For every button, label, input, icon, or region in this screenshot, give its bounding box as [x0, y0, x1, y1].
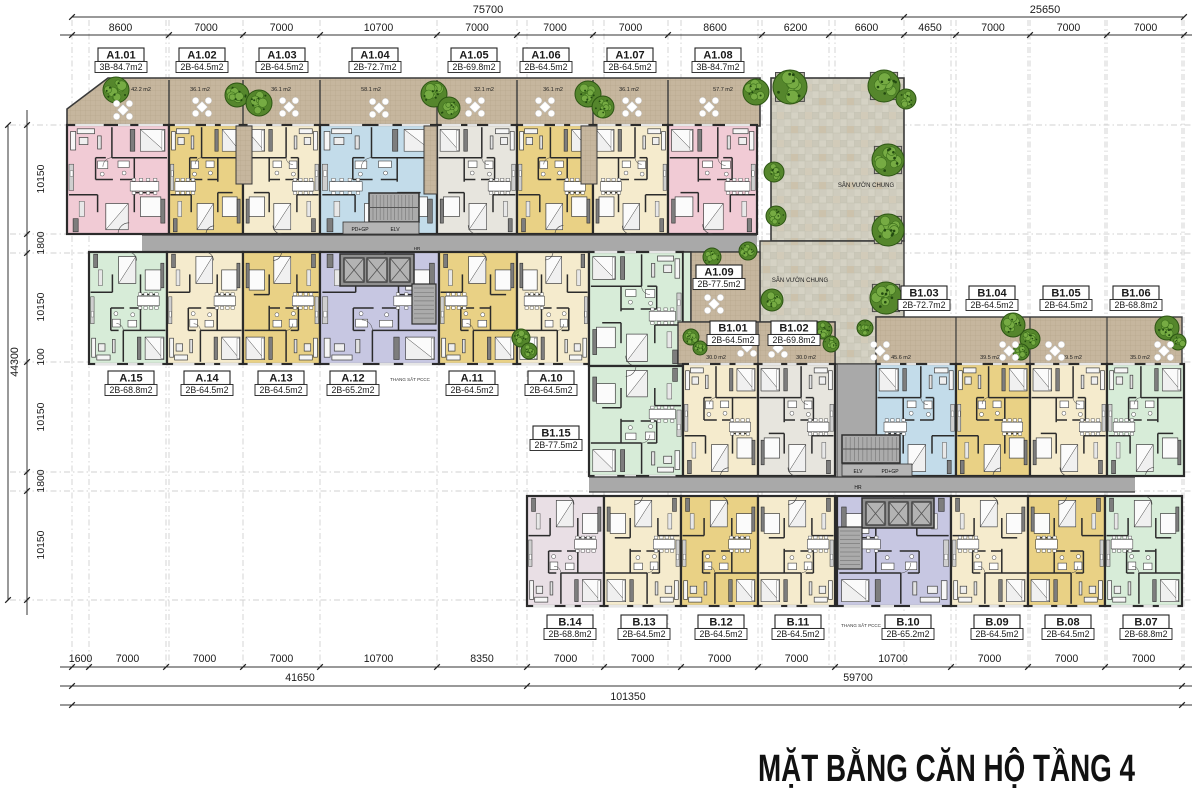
svg-text:A1.09: A1.09 [704, 267, 733, 279]
svg-text:A1.01: A1.01 [106, 50, 135, 62]
svg-text:A1.05: A1.05 [459, 50, 488, 62]
svg-text:SÂN VƯỜN CHUNG: SÂN VƯỜN CHUNG [772, 277, 829, 284]
svg-text:B.12: B.12 [709, 617, 732, 629]
svg-text:7000: 7000 [785, 653, 809, 665]
svg-text:2B-68.8m2: 2B-68.8m2 [1114, 300, 1157, 310]
svg-text:B1.06: B1.06 [1121, 288, 1150, 300]
svg-text:A1.02: A1.02 [187, 50, 216, 62]
svg-text:7000: 7000 [193, 653, 217, 665]
svg-text:75700: 75700 [473, 4, 504, 16]
svg-text:A.11: A.11 [461, 373, 484, 385]
svg-text:A.12: A.12 [341, 373, 364, 385]
svg-text:1600: 1600 [69, 653, 93, 665]
svg-text:3B-84.7m2: 3B-84.7m2 [696, 62, 739, 72]
svg-text:4650: 4650 [918, 22, 942, 34]
svg-text:2B-64.5m2: 2B-64.5m2 [776, 629, 819, 639]
svg-text:B.13: B.13 [632, 617, 655, 629]
svg-text:2B-65.2m2: 2B-65.2m2 [886, 629, 929, 639]
svg-text:2B-72.7m2: 2B-72.7m2 [902, 300, 945, 310]
svg-text:8600: 8600 [703, 22, 727, 34]
svg-text:32.1 m2: 32.1 m2 [474, 87, 494, 93]
svg-text:2B-68.8m2: 2B-68.8m2 [548, 629, 591, 639]
svg-text:7000: 7000 [631, 653, 655, 665]
svg-text:10150: 10150 [36, 164, 47, 193]
svg-text:30.0 m2: 30.0 m2 [796, 355, 816, 361]
svg-text:7000: 7000 [1055, 653, 1079, 665]
svg-text:2B-64.5m2: 2B-64.5m2 [970, 300, 1013, 310]
svg-text:ELV: ELV [853, 469, 863, 475]
svg-text:36.1 m2: 36.1 m2 [190, 87, 210, 93]
svg-text:7000: 7000 [1132, 653, 1156, 665]
svg-text:2B-69.8m2: 2B-69.8m2 [772, 335, 815, 345]
svg-text:7000: 7000 [1057, 22, 1081, 34]
svg-text:2B-64.5m2: 2B-64.5m2 [180, 62, 223, 72]
svg-text:2B-64.5m2: 2B-64.5m2 [1046, 629, 1089, 639]
svg-text:A.14: A.14 [195, 373, 219, 385]
svg-text:MẶT BẰNG CĂN HỘ TẦNG 4: MẶT BẰNG CĂN HỘ TẦNG 4 [758, 745, 1135, 790]
svg-text:A.15: A.15 [119, 373, 142, 385]
svg-text:7000: 7000 [465, 22, 489, 34]
svg-text:2B-77.5m2: 2B-77.5m2 [534, 440, 577, 450]
svg-text:10150: 10150 [36, 292, 47, 321]
svg-text:2B-64.5m2: 2B-64.5m2 [1044, 300, 1087, 310]
svg-text:100: 100 [36, 348, 47, 366]
svg-text:44300: 44300 [9, 347, 21, 377]
svg-text:A1.03: A1.03 [267, 50, 296, 62]
svg-text:7000: 7000 [708, 653, 732, 665]
svg-text:6600: 6600 [855, 22, 879, 34]
svg-text:1800: 1800 [36, 231, 47, 254]
svg-text:B.10: B.10 [896, 617, 919, 629]
svg-text:B1.01: B1.01 [718, 323, 747, 335]
svg-text:2B-69.8m2: 2B-69.8m2 [452, 62, 495, 72]
svg-text:10700: 10700 [364, 653, 394, 665]
svg-text:10700: 10700 [878, 653, 908, 665]
svg-text:ELV: ELV [390, 227, 400, 233]
svg-text:25650: 25650 [1030, 4, 1061, 16]
svg-text:PD+GP: PD+GP [351, 227, 369, 233]
svg-text:7000: 7000 [554, 653, 578, 665]
svg-text:2B-72.7m2: 2B-72.7m2 [353, 62, 396, 72]
svg-text:7000: 7000 [619, 22, 643, 34]
svg-text:2B-64.5m2: 2B-64.5m2 [622, 629, 665, 639]
svg-text:A1.08: A1.08 [703, 50, 732, 62]
svg-text:2B-77.5m2: 2B-77.5m2 [697, 279, 740, 289]
svg-text:7000: 7000 [194, 22, 218, 34]
svg-text:B.07: B.07 [1134, 617, 1157, 629]
svg-text:B1.04: B1.04 [977, 288, 1007, 300]
svg-text:59700: 59700 [843, 672, 873, 684]
svg-text:B.14: B.14 [558, 617, 582, 629]
svg-text:10150: 10150 [36, 402, 47, 431]
svg-text:36.1 m2: 36.1 m2 [271, 87, 291, 93]
svg-text:THANG SẮT PCCC: THANG SẮT PCCC [841, 621, 881, 628]
svg-text:3B-84.7m2: 3B-84.7m2 [99, 62, 142, 72]
svg-text:2B-64.5m2: 2B-64.5m2 [529, 385, 572, 395]
svg-text:A1.06: A1.06 [531, 50, 560, 62]
svg-text:39.5 m2: 39.5 m2 [1062, 355, 1082, 361]
svg-text:36.1 m2: 36.1 m2 [543, 87, 563, 93]
svg-text:45.6 m2: 45.6 m2 [891, 355, 911, 361]
svg-text:10150: 10150 [36, 530, 47, 559]
svg-text:A.10: A.10 [539, 373, 562, 385]
svg-text:2B-64.5m2: 2B-64.5m2 [975, 629, 1018, 639]
svg-text:PD+GP: PD+GP [881, 469, 899, 475]
svg-text:SÂN VƯỜN CHUNG: SÂN VƯỜN CHUNG [838, 182, 895, 189]
svg-text:7000: 7000 [116, 653, 140, 665]
svg-text:35.0 m2: 35.0 m2 [1130, 355, 1150, 361]
svg-text:8350: 8350 [470, 653, 494, 665]
svg-text:7000: 7000 [270, 22, 294, 34]
svg-text:101350: 101350 [610, 691, 645, 703]
svg-text:A1.07: A1.07 [615, 50, 644, 62]
svg-text:B1.05: B1.05 [1051, 288, 1080, 300]
svg-text:B.08: B.08 [1056, 617, 1079, 629]
svg-text:57.7 m2: 57.7 m2 [713, 87, 733, 93]
svg-text:7000: 7000 [978, 653, 1002, 665]
svg-text:HR: HR [414, 246, 421, 251]
svg-text:30.0 m2: 30.0 m2 [706, 355, 726, 361]
svg-text:A1.04: A1.04 [360, 50, 390, 62]
svg-text:B.11: B.11 [787, 617, 810, 629]
svg-text:8600: 8600 [109, 22, 133, 34]
svg-text:36.1 m2: 36.1 m2 [619, 87, 639, 93]
svg-text:7000: 7000 [1134, 22, 1158, 34]
svg-text:2B-64.5m2: 2B-64.5m2 [260, 62, 303, 72]
svg-text:B.09: B.09 [985, 617, 1008, 629]
svg-text:A.13: A.13 [269, 373, 292, 385]
svg-text:58.1 m2: 58.1 m2 [361, 87, 381, 93]
svg-text:41650: 41650 [285, 672, 315, 684]
svg-text:B1.03: B1.03 [909, 288, 938, 300]
svg-text:2B-68.8m2: 2B-68.8m2 [1124, 629, 1167, 639]
svg-text:2B-64.5m2: 2B-64.5m2 [259, 385, 302, 395]
svg-text:HR: HR [854, 485, 862, 491]
svg-text:B1.02: B1.02 [779, 323, 808, 335]
svg-text:7000: 7000 [270, 653, 294, 665]
svg-text:7000: 7000 [543, 22, 567, 34]
svg-text:10700: 10700 [364, 22, 394, 34]
svg-text:7000: 7000 [981, 22, 1005, 34]
svg-text:THANG SẮT PCCC: THANG SẮT PCCC [390, 375, 430, 382]
svg-text:2B-64.5m2: 2B-64.5m2 [524, 62, 567, 72]
svg-text:2B-68.8m2: 2B-68.8m2 [109, 385, 152, 395]
svg-text:2B-64.5m2: 2B-64.5m2 [699, 629, 742, 639]
svg-text:2B-64.5m2: 2B-64.5m2 [185, 385, 228, 395]
svg-text:2B-64.5m2: 2B-64.5m2 [711, 335, 754, 345]
svg-text:42.2 m2: 42.2 m2 [131, 87, 151, 93]
svg-text:B1.15: B1.15 [541, 428, 570, 440]
svg-text:6200: 6200 [784, 22, 808, 34]
svg-text:2B-64.5m2: 2B-64.5m2 [608, 62, 651, 72]
svg-text:39.5 m2: 39.5 m2 [980, 355, 1000, 361]
svg-text:2B-64.5m2: 2B-64.5m2 [450, 385, 493, 395]
svg-text:2B-65.2m2: 2B-65.2m2 [331, 385, 374, 395]
svg-text:1800: 1800 [36, 469, 47, 492]
